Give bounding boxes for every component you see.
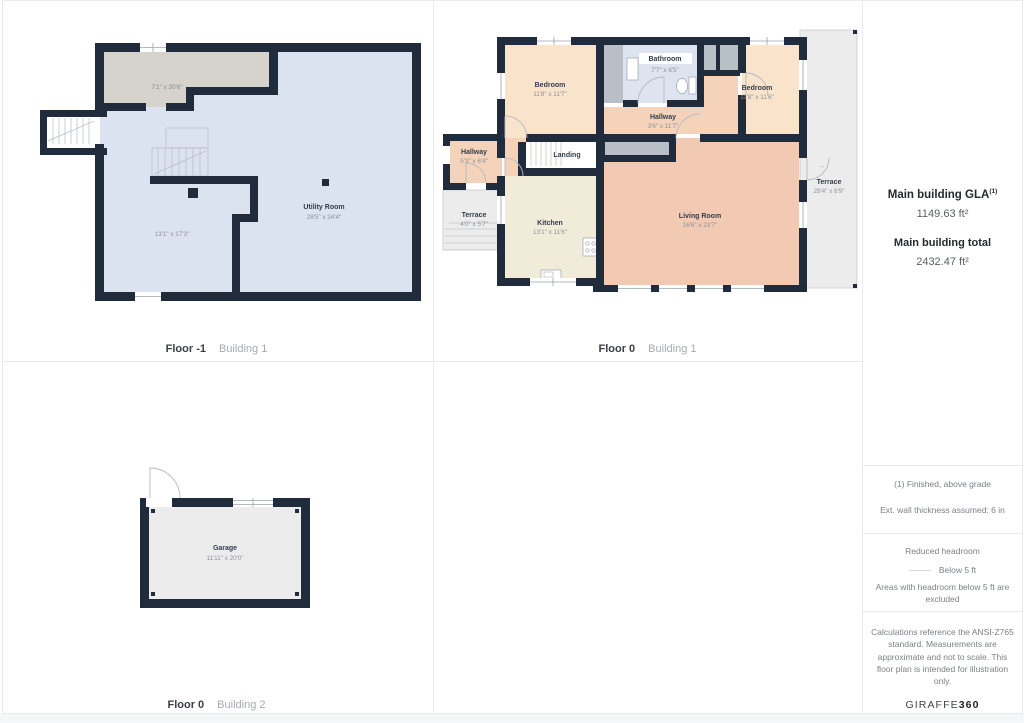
terrace-door-arrow-icon: →: [818, 163, 825, 170]
bathroom-name: Bathroom: [648, 56, 681, 63]
garage-dims: 11'11" x 20'0": [206, 555, 243, 562]
bedroom-left-area: [501, 41, 600, 138]
terrace-right-name: Terrace: [817, 179, 842, 186]
caption-building: Building 2: [217, 699, 265, 711]
kitchen-name: Kitchen: [537, 220, 563, 227]
hallway-left-name: Hallway: [461, 149, 487, 156]
hallway-center-name: Hallway: [650, 114, 676, 121]
note-wall-thickness: Ext. wall thickness assumed: 6 in: [863, 505, 1022, 515]
terrace-right-dims: 29'4" x 6'9": [813, 188, 844, 195]
toilet: [677, 79, 688, 94]
basement-floor-fills: [100, 48, 416, 296]
chimney-block: [188, 188, 198, 198]
living-room-name: Living Room: [679, 213, 721, 220]
kitchen-dims: 13'1" x 11'6": [533, 229, 567, 236]
terrace-small-dims: 4'0" x 5'7": [460, 221, 488, 228]
headroom-note: Areas with headroom below 5 ft are exclu…: [870, 582, 1016, 606]
gla-value: 1149.63 ft²: [863, 208, 1022, 220]
sidebar-headroom-section: Reduced headroom Below 5 ft Areas with h…: [863, 546, 1022, 606]
headroom-title: Reduced headroom: [863, 546, 1022, 556]
brand-giraffe: GIRAFFE: [905, 699, 958, 711]
gla-footnote-marker: (1): [989, 188, 997, 195]
below-5ft-line-icon: [909, 570, 931, 571]
terrace-right-area: [800, 30, 857, 288]
total-title: Main building total: [863, 237, 1022, 249]
hallway-left-dims: 5'3" x 6'4": [460, 158, 488, 165]
sidebar-disclaimer-section: Calculations reference the ANSI-Z765 sta…: [863, 611, 1022, 711]
floorplan-garage-svg: Garage 11'11" x 20'0": [0, 361, 433, 691]
sidebar-notes-section: (1) Finished, above grade Ext. wall thic…: [863, 479, 1022, 515]
kitchen-area: [505, 176, 596, 278]
caption-floor: Floor 0: [599, 343, 636, 355]
bedroom-left-name: Bedroom: [535, 82, 566, 89]
bottom-margin: [0, 714, 1024, 723]
sidebar-divider-2: [863, 533, 1022, 534]
brand-360: 360: [959, 699, 980, 711]
hallway-center-dims: 3'6" x 11'7": [648, 123, 679, 130]
closet-center-area: [605, 140, 669, 155]
landing-name: Landing: [553, 152, 580, 159]
caption-garage: Floor 0 Building 2: [0, 697, 433, 713]
floorplan-basement-svg: 7'1" x 20'6" Utility Room 28'5" x 34'4" …: [0, 0, 433, 340]
garage-name: Garage: [213, 545, 237, 552]
caption-floor: Floor 0: [168, 699, 205, 711]
garage-area: [144, 502, 306, 604]
bathroom-sink: [627, 58, 638, 80]
caption-mainfloor: Floor 0 Building 1: [433, 341, 862, 357]
terrace-small-area: [443, 190, 505, 250]
headroom-legend-label: Below 5 ft: [939, 565, 976, 575]
gla-title-text: Main building GLA: [888, 189, 990, 201]
caption-floor: Floor -1: [166, 343, 206, 355]
living-room-dims: 16'6" x 23'7": [683, 222, 718, 229]
closet-left-area: [600, 41, 627, 103]
basement-room-dims: 13'1" x 17'3": [155, 231, 190, 238]
floorplan-mainfloor-svg: Bedroom 11'8" x 11'7" Bathroom 7'7" x 6'…: [433, 0, 862, 340]
bedroom-right-dims: 11'8" x 11'6": [740, 94, 774, 101]
headroom-legend-row: Below 5 ft: [863, 565, 1022, 575]
utility-room-name: Utility Room: [303, 204, 344, 211]
gla-title: Main building GLA(1): [863, 188, 1022, 201]
giraffe360-logo: GIRAFFE360: [863, 699, 1022, 711]
sidebar-stats: Main building GLA(1) 1149.63 ft² Main bu…: [863, 188, 1022, 268]
disclaimer-text: Calculations reference the ANSI-Z765 sta…: [870, 626, 1016, 688]
stove: [583, 238, 598, 256]
total-value: 2432.47 ft²: [863, 256, 1022, 268]
utility-room-dims: 28'5" x 34'4": [307, 214, 342, 221]
caption-basement: Floor -1 Building 1: [0, 341, 433, 357]
garage-door: [150, 468, 180, 498]
bathroom-dims: 7'7" x 6'5": [651, 67, 679, 74]
floorplan-sheet: 7'1" x 20'6" Utility Room 28'5" x 34'4" …: [0, 0, 1024, 723]
terrace-small-name: Terrace: [462, 212, 487, 219]
bedroom-left-dims: 11'8" x 11'7": [533, 91, 567, 98]
support-post: [322, 179, 329, 186]
bedroom-right-name: Bedroom: [742, 85, 773, 92]
caption-building: Building 1: [219, 343, 267, 355]
reduced-headroom-dims: 7'1" x 20'6": [151, 84, 182, 91]
caption-building: Building 1: [648, 343, 696, 355]
sidebar-divider-1: [863, 465, 1022, 466]
note-finished: (1) Finished, above grade: [863, 479, 1022, 489]
